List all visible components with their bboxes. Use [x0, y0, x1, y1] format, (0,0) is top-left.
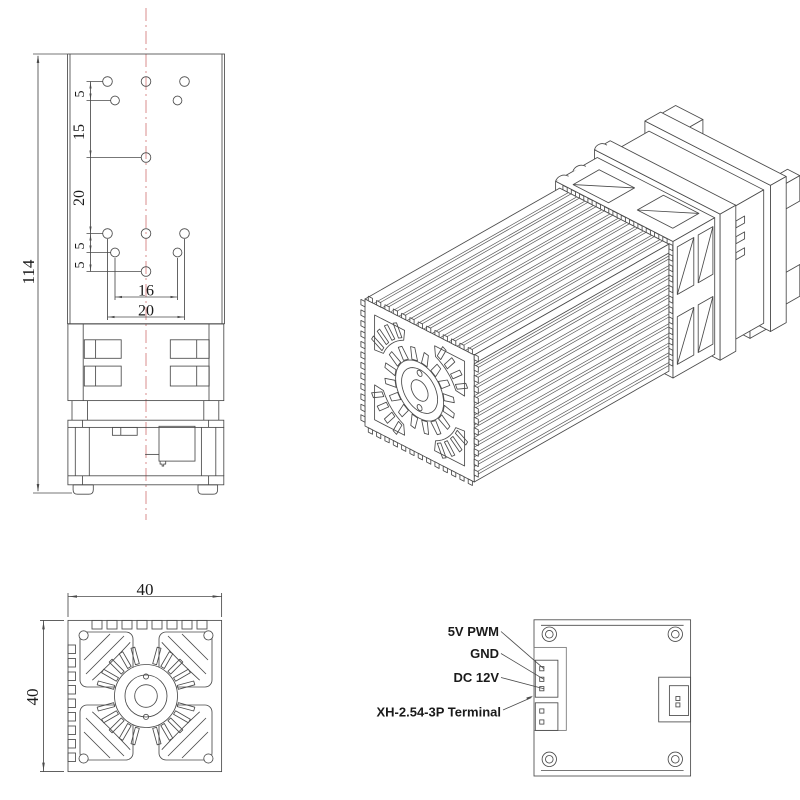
svg-text:40: 40	[23, 689, 42, 706]
svg-text:5: 5	[73, 243, 88, 250]
svg-text:XH-2.54-3P Terminal: XH-2.54-3P Terminal	[376, 705, 501, 720]
svg-text:15: 15	[71, 124, 88, 140]
svg-text:20: 20	[71, 190, 88, 206]
svg-text:5: 5	[73, 262, 88, 269]
svg-text:GND: GND	[470, 646, 499, 661]
svg-text:16: 16	[138, 283, 154, 300]
svg-text:114: 114	[19, 259, 38, 284]
svg-text:40: 40	[137, 580, 154, 599]
svg-text:5V PWM: 5V PWM	[448, 624, 499, 639]
svg-text:5: 5	[73, 91, 88, 98]
svg-text:DC 12V: DC 12V	[453, 670, 499, 685]
svg-text:20: 20	[138, 303, 154, 320]
